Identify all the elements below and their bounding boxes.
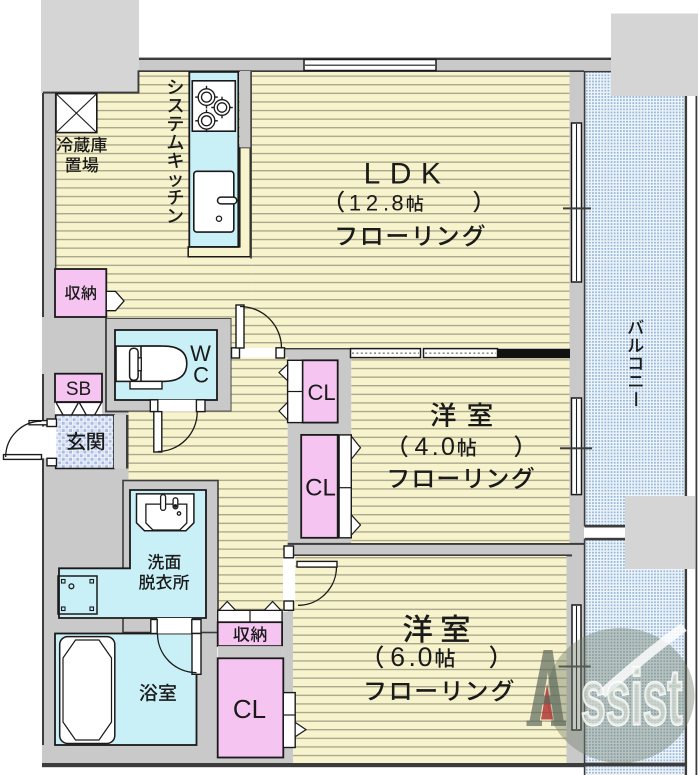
svg-text:6: 6	[390, 642, 405, 672]
svg-text:1: 1	[349, 190, 361, 215]
svg-text:2: 2	[366, 190, 378, 215]
svg-text:CL: CL	[305, 475, 336, 502]
svg-text:CL: CL	[233, 694, 266, 724]
svg-text:.: .	[383, 190, 389, 215]
svg-text:4: 4	[415, 433, 429, 461]
svg-text:0: 0	[441, 433, 455, 461]
svg-text:.: .	[432, 433, 439, 461]
svg-text:LDK: LDK	[364, 158, 451, 191]
svg-text:C: C	[193, 362, 209, 387]
svg-text:SB: SB	[66, 379, 91, 400]
svg-text:ssist: ssist	[581, 655, 682, 741]
svg-text:CL: CL	[307, 380, 335, 405]
svg-text:.: .	[409, 642, 416, 672]
svg-text:0: 0	[418, 642, 433, 672]
svg-text:8: 8	[391, 190, 403, 215]
